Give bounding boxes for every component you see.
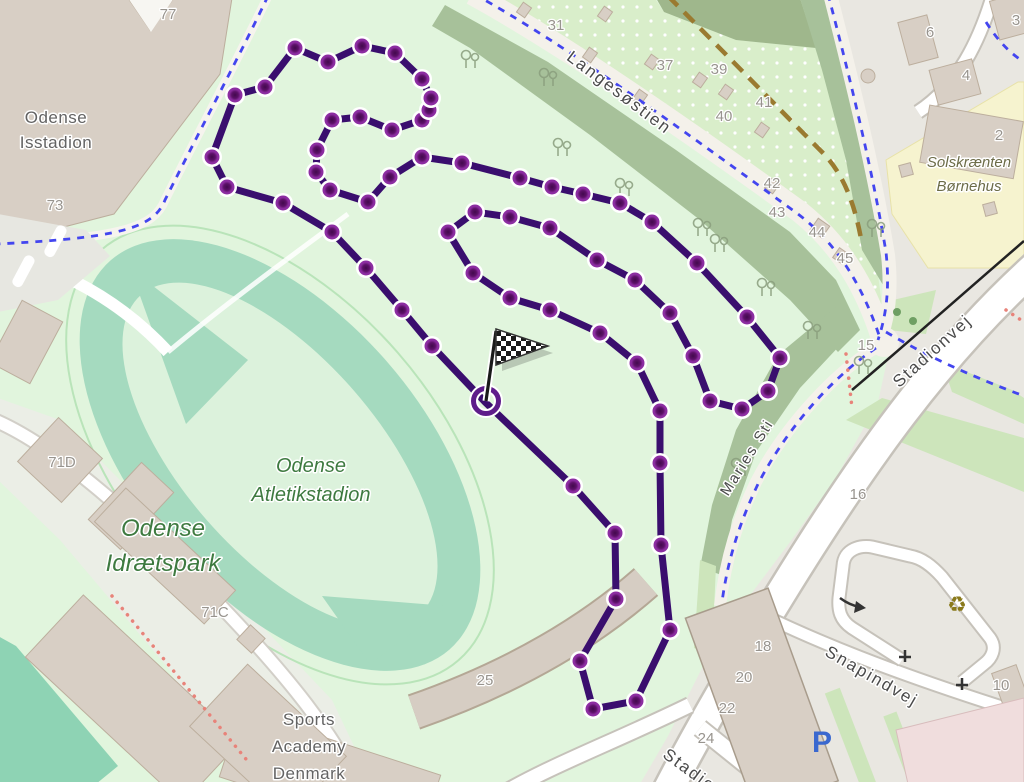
route-waypoint[interactable]: [455, 156, 470, 171]
route-waypoint[interactable]: [205, 150, 220, 165]
route-waypoint[interactable]: [415, 72, 430, 87]
recycling-icon: ♻: [947, 592, 967, 617]
route-waypoint[interactable]: [228, 88, 243, 103]
area-label: SportsAcademyDenmark: [272, 710, 346, 782]
route-waypoint[interactable]: [288, 41, 303, 56]
house-number: 22: [719, 700, 736, 717]
house-number: 18: [755, 638, 772, 655]
route-waypoint[interactable]: [543, 221, 558, 236]
route-waypoint[interactable]: [703, 394, 718, 409]
route-waypoint[interactable]: [220, 180, 235, 195]
route-waypoint[interactable]: [630, 356, 645, 371]
house-number: 40: [716, 108, 733, 125]
house-number: 71D: [48, 454, 76, 471]
route-waypoint[interactable]: [415, 150, 430, 165]
bush-icon: [893, 308, 901, 316]
house-number: 16: [850, 486, 867, 503]
house-number: 71C: [201, 604, 229, 621]
route-waypoint[interactable]: [361, 195, 376, 210]
route-waypoint[interactable]: [653, 404, 668, 419]
route-waypoint[interactable]: [761, 384, 776, 399]
house-number: 25: [477, 672, 494, 689]
route-waypoint[interactable]: [545, 180, 560, 195]
route-waypoint[interactable]: [258, 80, 273, 95]
route-waypoint[interactable]: [653, 456, 668, 471]
house-number: 42: [764, 175, 781, 192]
route-waypoint[interactable]: [740, 310, 755, 325]
house-number: 3: [1012, 12, 1020, 29]
route-waypoint[interactable]: [566, 479, 581, 494]
route-waypoint[interactable]: [388, 46, 403, 61]
route-waypoint[interactable]: [355, 39, 370, 54]
route-waypoint[interactable]: [573, 654, 588, 669]
route-waypoint[interactable]: [645, 215, 660, 230]
route-waypoint[interactable]: [609, 592, 624, 607]
route-waypoint[interactable]: [466, 266, 481, 281]
house-number: 73: [47, 197, 64, 214]
route-waypoint[interactable]: [613, 196, 628, 211]
route-waypoint[interactable]: [690, 256, 705, 271]
route-waypoint[interactable]: [353, 110, 368, 125]
route-waypoint[interactable]: [686, 349, 701, 364]
parking-icon: P: [812, 726, 832, 759]
route-waypoint[interactable]: [424, 91, 439, 106]
house-number: 6: [926, 24, 934, 41]
house-number: 2: [995, 127, 1003, 144]
map-canvas[interactable]: P♻ 7773313739404142434445643215161820222…: [0, 0, 1024, 782]
house-number: 77: [160, 6, 177, 23]
route-waypoint[interactable]: [773, 351, 788, 366]
house-number: 10: [993, 677, 1010, 694]
map-viewport[interactable]: P♻ 7773313739404142434445643215161820222…: [0, 0, 1024, 782]
house-number: 37: [657, 57, 674, 74]
route-waypoint[interactable]: [503, 291, 518, 306]
route-waypoint[interactable]: [576, 187, 591, 202]
route-waypoint[interactable]: [321, 55, 336, 70]
house-number: 41: [756, 94, 773, 111]
route-waypoint[interactable]: [663, 306, 678, 321]
route-waypoint[interactable]: [629, 694, 644, 709]
route-waypoint[interactable]: [513, 171, 528, 186]
route-waypoint[interactable]: [441, 225, 456, 240]
house-number: 44: [809, 224, 826, 241]
route-waypoint[interactable]: [325, 113, 340, 128]
house-number: 15: [858, 337, 875, 354]
bush-icon: [909, 317, 917, 325]
route-waypoint[interactable]: [325, 225, 340, 240]
route-waypoint[interactable]: [310, 143, 325, 158]
route-waypoint[interactable]: [425, 339, 440, 354]
route-waypoint[interactable]: [663, 623, 678, 638]
route-waypoint[interactable]: [590, 253, 605, 268]
house-number: 43: [769, 204, 786, 221]
route-waypoint[interactable]: [735, 402, 750, 417]
house-number: 31: [548, 17, 565, 34]
route-waypoint[interactable]: [309, 165, 324, 180]
route-waypoint[interactable]: [383, 170, 398, 185]
route-waypoint[interactable]: [654, 538, 669, 553]
route-waypoint[interactable]: [593, 326, 608, 341]
route-waypoint[interactable]: [586, 702, 601, 717]
route-waypoint[interactable]: [503, 210, 518, 225]
house-number: 24: [698, 730, 715, 747]
house-number: 20: [736, 669, 753, 686]
house-number: 45: [837, 250, 854, 267]
route-waypoint[interactable]: [628, 273, 643, 288]
route-waypoint[interactable]: [359, 261, 374, 276]
route-waypoint[interactable]: [323, 183, 338, 198]
route-waypoint[interactable]: [276, 196, 291, 211]
house-number: 4: [962, 67, 970, 84]
route-waypoint[interactable]: [543, 303, 558, 318]
house-number: 39: [711, 61, 728, 78]
route-waypoint[interactable]: [608, 526, 623, 541]
route-waypoint[interactable]: [468, 205, 483, 220]
route-waypoint[interactable]: [395, 303, 410, 318]
route-waypoint[interactable]: [385, 123, 400, 138]
